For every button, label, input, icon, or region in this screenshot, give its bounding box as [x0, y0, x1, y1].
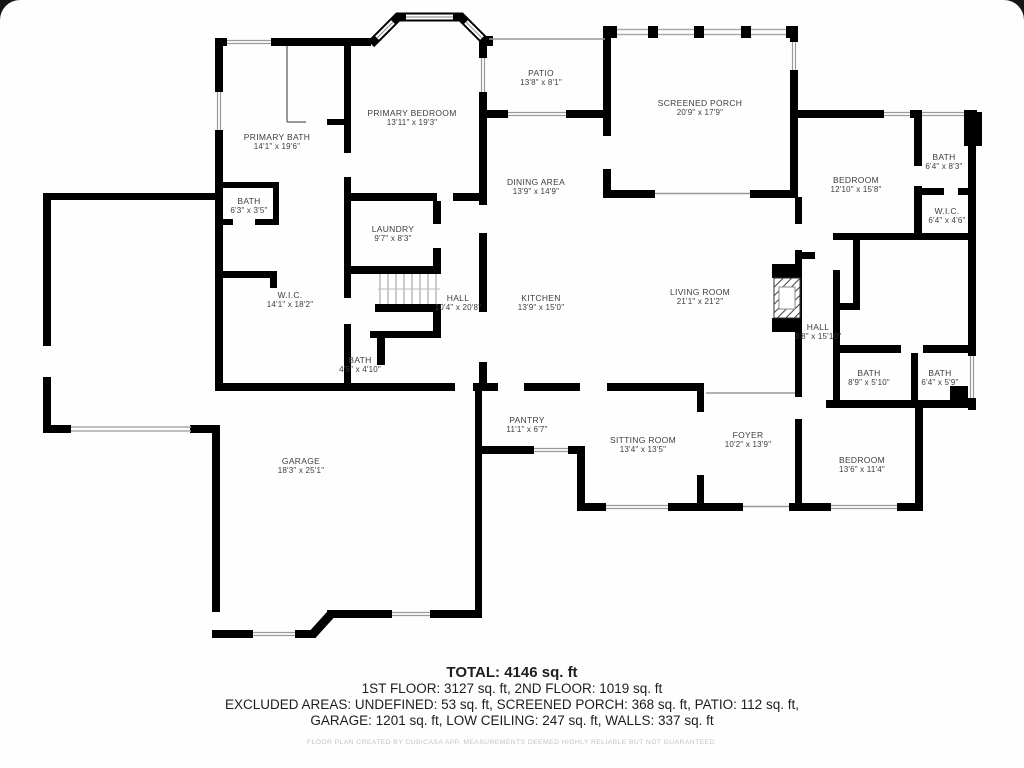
room-label-garage: GARAGE18'3" x 25'1": [278, 456, 324, 476]
room-label-bath-3: BATH4'5" x 4'10": [339, 355, 381, 375]
excluded-areas-line1: EXCLUDED AREAS: UNDEFINED: 53 sq. ft, SC…: [0, 697, 1024, 713]
room-label-living-room: LIVING ROOM21'1" x 21'2": [670, 287, 730, 307]
room-label-sitting-room: SITTING ROOM13'4" x 13'5": [610, 435, 676, 455]
corner-notch-right: [1004, 0, 1024, 20]
fireplace: [774, 278, 800, 318]
room-label-primary-bedroom: PRIMARY BEDROOM13'11" x 19'3": [367, 108, 456, 128]
disclaimer: FLOOR PLAN CREATED BY CUBICASA APP. MEAS…: [0, 738, 1024, 747]
room-label-dining-area: DINING AREA13'9" x 14'9": [507, 177, 565, 197]
room-label-wic-1: W.I.C.6'4" x 4'6": [928, 206, 965, 226]
room-label-bedroom-2: BEDROOM13'6" x 11'4": [839, 455, 885, 475]
room-label-patio: PATIO13'8" x 8'1": [520, 68, 562, 88]
room-label-kitchen: KITCHEN13'9" x 15'0": [518, 293, 564, 313]
floor-plan-page: PATIO13'8" x 8'1" SCREENED PORCH20'9" x …: [0, 0, 1024, 768]
room-label-primary-bath: PRIMARY BATH14'1" x 19'6": [244, 132, 310, 152]
room-label-bath-5: BATH6'4" x 5'9": [921, 368, 958, 388]
room-label-bath-4: BATH8'9" x 5'10": [848, 368, 890, 388]
room-label-bedroom-1: BEDROOM12'10" x 15'8": [830, 175, 881, 195]
room-label-wic-2: W.I.C.14'1" x 18'2": [267, 290, 313, 310]
corner-notch-left: [0, 0, 20, 20]
room-label-pantry: PANTRY11'1" x 6'7": [506, 415, 547, 435]
room-label-laundry: LAUNDRY9'7" x 8'3": [372, 224, 415, 244]
room-label-foyer: FOYER10'2" x 13'9": [725, 430, 771, 450]
total-area: TOTAL: 4146 sq. ft: [0, 664, 1024, 681]
room-label-bath-2: BATH6'4" x 8'3": [925, 152, 962, 172]
staircase: [378, 274, 440, 304]
excluded-areas-line2: GARAGE: 1201 sq. ft, LOW CEILING: 247 sq…: [0, 713, 1024, 729]
floor-areas: 1ST FLOOR: 3127 sq. ft, 2ND FLOOR: 1019 …: [0, 681, 1024, 697]
room-label-bath-1: BATH6'3" x 3'5": [230, 196, 267, 216]
room-label-hall-2: HALL3'8" x 15'10": [795, 322, 841, 342]
room-label-screened-porch: SCREENED PORCH20'9" x 17'9": [658, 98, 743, 118]
room-label-hall-1: HALL10'4" x 20'8": [435, 293, 481, 313]
area-summary: TOTAL: 4146 sq. ft 1ST FLOOR: 3127 sq. f…: [0, 664, 1024, 747]
